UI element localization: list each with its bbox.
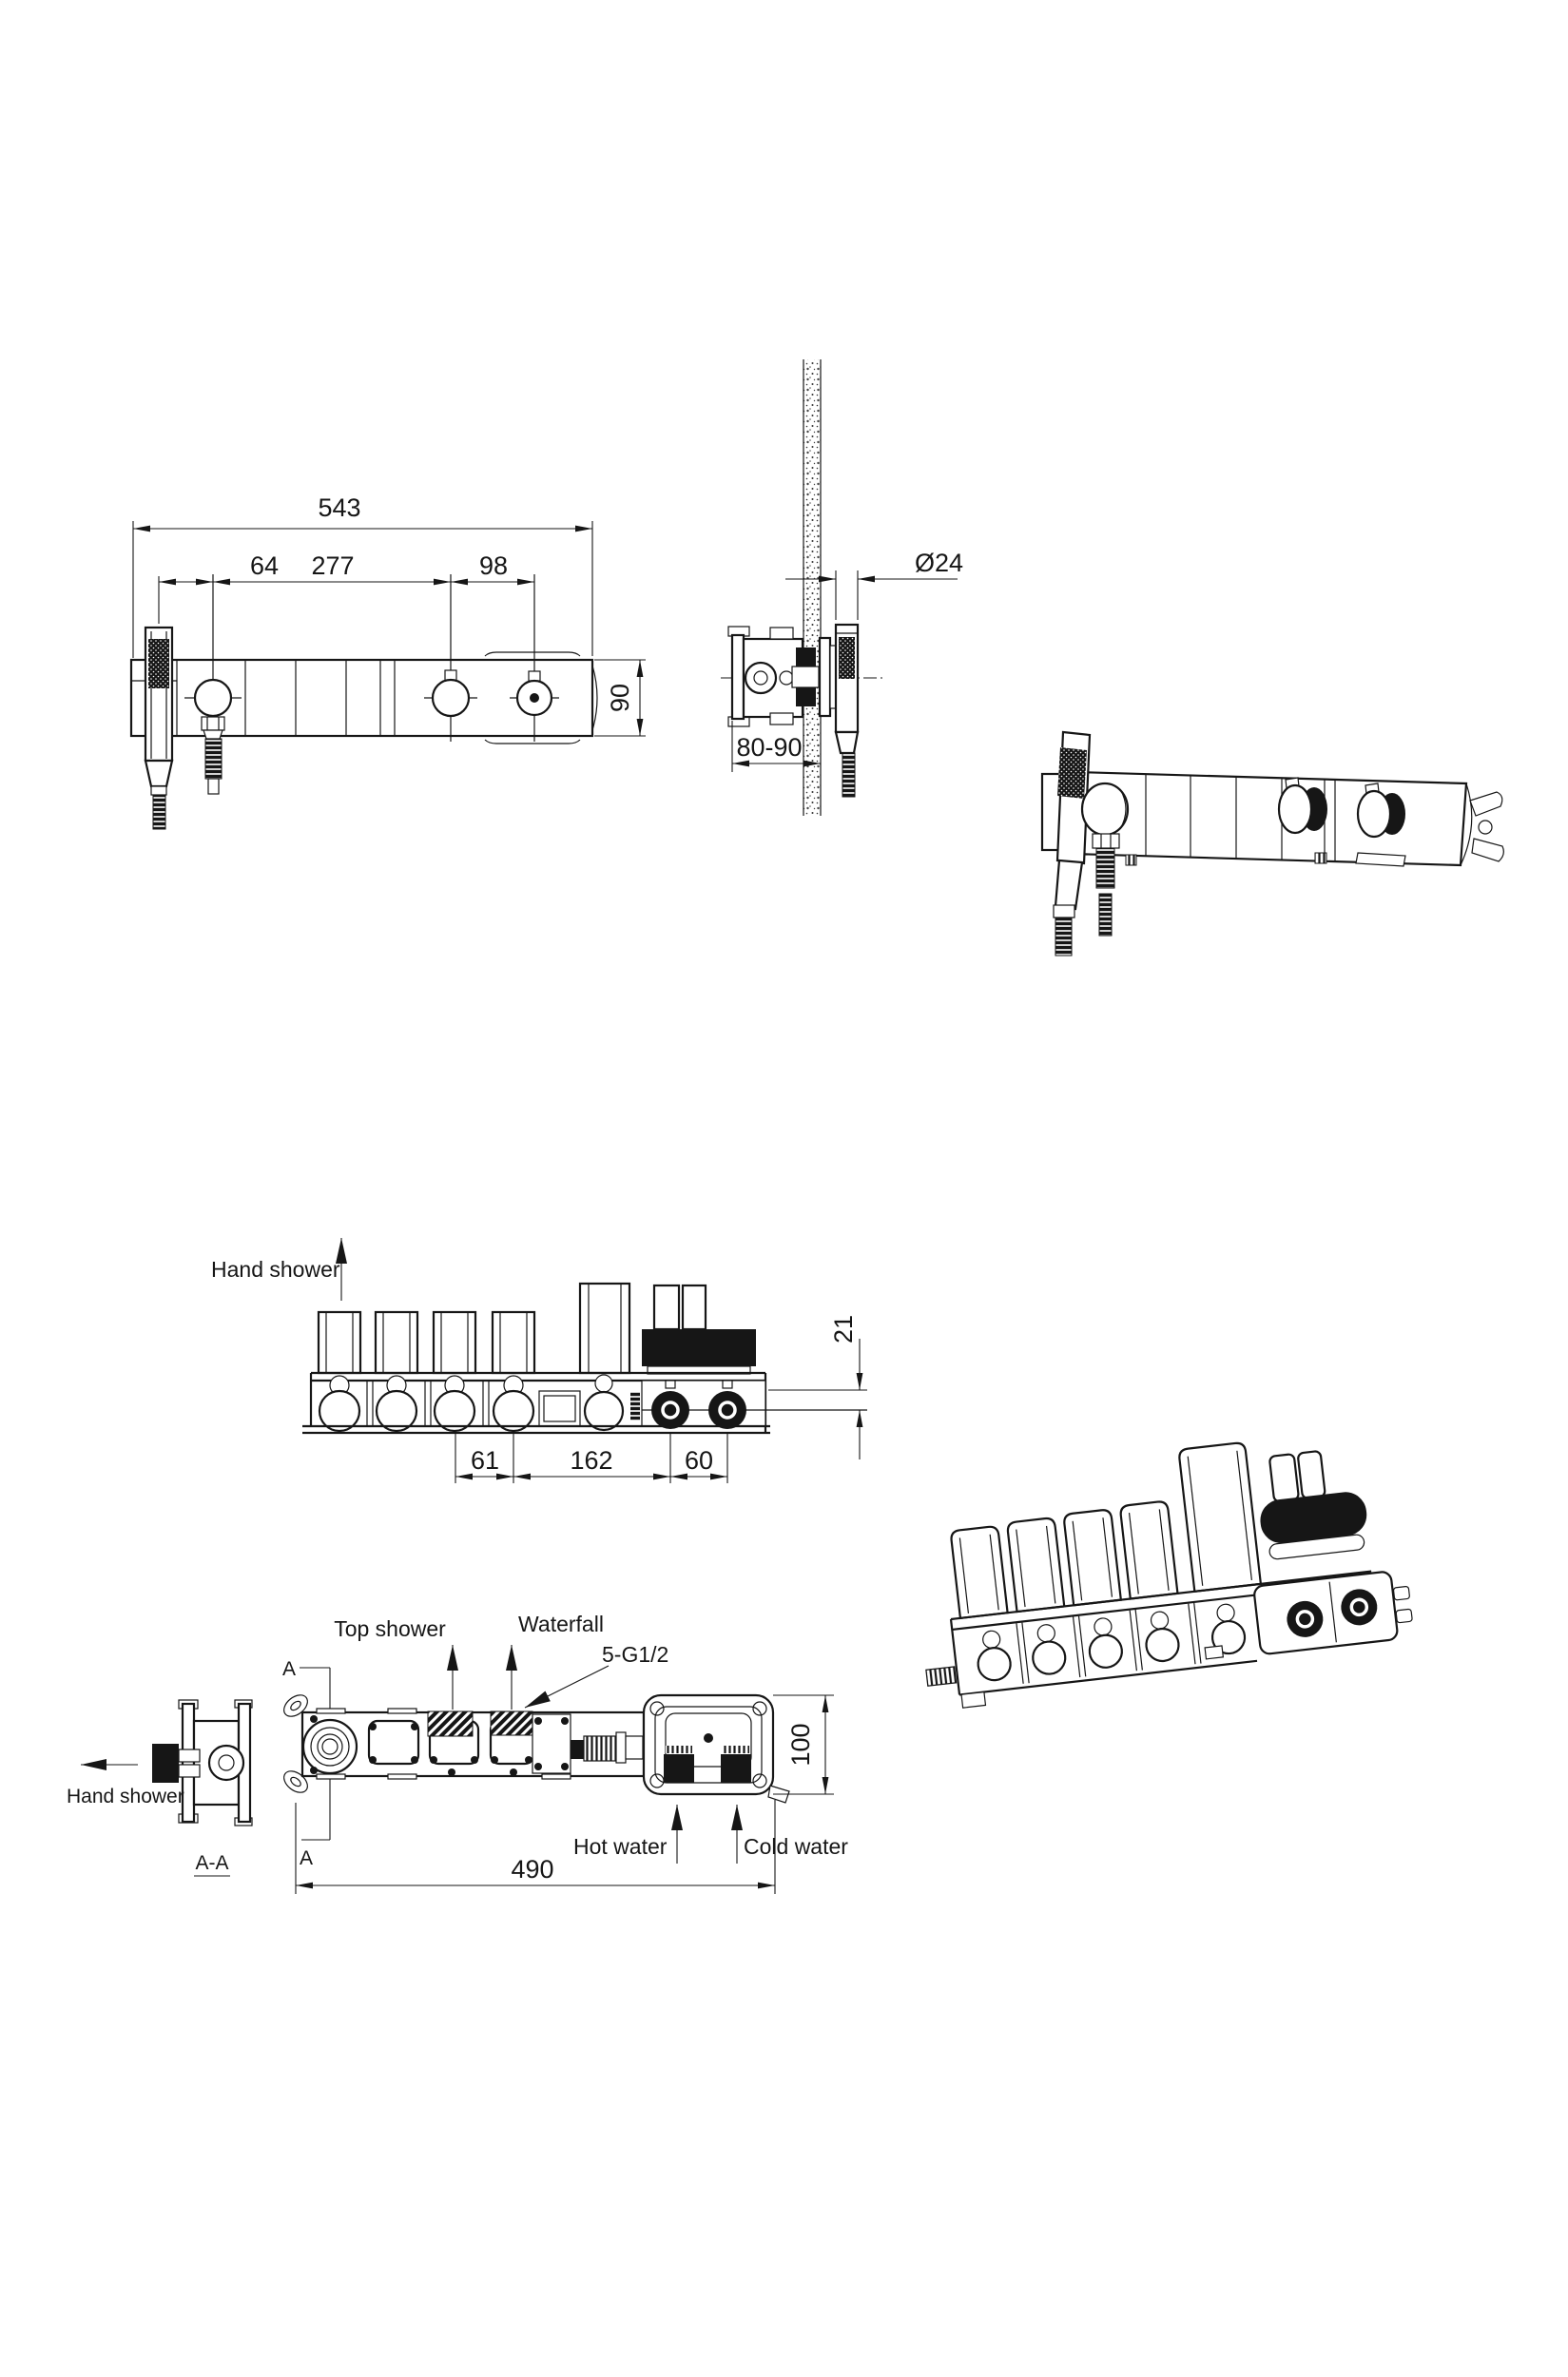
foot-tab-3d bbox=[1356, 853, 1405, 866]
trim-plate bbox=[820, 638, 830, 716]
dim-plate-offset: 21 bbox=[768, 1315, 867, 1459]
cold-water-label: Cold water bbox=[744, 1834, 848, 1859]
rough-in-3d-view bbox=[904, 1425, 1416, 1711]
outlet-port-3d bbox=[1315, 853, 1326, 863]
dim-61: 61 bbox=[471, 1446, 499, 1475]
waterfall-outlet bbox=[491, 1711, 532, 1735]
hand-shower-3d bbox=[1054, 732, 1090, 956]
section-marker-bottom: A bbox=[300, 1847, 313, 1869]
rough-in-body-top bbox=[280, 1691, 789, 1803]
thread-spec-leader bbox=[525, 1666, 609, 1708]
dim-277: 277 bbox=[311, 551, 354, 580]
hand-shower-grip bbox=[148, 639, 169, 688]
dim-80-90: 80-90 bbox=[736, 733, 802, 762]
dim-row-rough-in: 61 162 60 bbox=[455, 1432, 727, 1483]
waterfall-label: Waterfall bbox=[518, 1612, 604, 1636]
hand-shower-label: Hand shower bbox=[211, 1257, 340, 1282]
dim-64: 64 bbox=[250, 551, 279, 580]
rough-in-top-view: Hand shower A-A A A bbox=[67, 1612, 848, 1894]
dim-o24: Ø24 bbox=[915, 549, 963, 577]
section-marker-top: A bbox=[282, 1658, 296, 1680]
backplate-top-edge bbox=[485, 652, 580, 656]
dim-body-length: 490 bbox=[296, 1800, 775, 1894]
backplate-bottom-edge bbox=[485, 740, 580, 744]
dim-90: 90 bbox=[606, 684, 634, 712]
top-shower-outlet bbox=[428, 1711, 473, 1736]
dim-total-width: 543 bbox=[133, 493, 592, 658]
bar-3d bbox=[1073, 772, 1466, 865]
a-a-label: A-A bbox=[195, 1852, 228, 1874]
thread-strip bbox=[630, 1392, 640, 1420]
top-shower-label: Top shower bbox=[334, 1616, 446, 1641]
hand-shower-front bbox=[145, 628, 172, 829]
dim-490: 490 bbox=[511, 1855, 553, 1884]
hot-water-inlet bbox=[664, 1754, 694, 1783]
outlet-thread bbox=[205, 739, 222, 779]
tall-cap-3d bbox=[1178, 1442, 1261, 1592]
front-view: 543 64 277 98 90 bbox=[131, 493, 646, 829]
thread-spec-label: 5-G1/2 bbox=[602, 1642, 668, 1667]
dim-543: 543 bbox=[318, 493, 360, 522]
dim-60: 60 bbox=[685, 1446, 713, 1475]
rough-in-front-view: Hand shower bbox=[211, 1238, 867, 1483]
dim-21: 21 bbox=[829, 1315, 858, 1343]
dim-body-width: 100 bbox=[773, 1695, 834, 1794]
inlet-stub-3d bbox=[926, 1667, 957, 1686]
thermostat-block-top bbox=[644, 1695, 789, 1803]
valve-chambers bbox=[319, 1375, 640, 1431]
section-label: A-A bbox=[194, 1852, 230, 1876]
diverter-knob-3d bbox=[1082, 783, 1128, 936]
drawing-svg: 543 64 277 98 90 bbox=[0, 0, 1568, 2377]
hand-shower-hose bbox=[153, 795, 165, 829]
tall-cap bbox=[580, 1284, 629, 1373]
hand-shower-side bbox=[836, 625, 858, 797]
side-view: Ø24 80-90 bbox=[721, 359, 963, 816]
dim-162: 162 bbox=[570, 1446, 612, 1475]
hot-water-label: Hot water bbox=[573, 1834, 668, 1859]
assembled-panel-3d bbox=[1042, 732, 1503, 956]
dim-bar-height: 90 bbox=[594, 660, 646, 736]
protective-caps bbox=[319, 1284, 756, 1374]
dim-row-knobs: 64 277 98 bbox=[159, 551, 534, 624]
wall-section bbox=[803, 359, 821, 816]
thermostat-cap-band bbox=[642, 1329, 756, 1366]
technical-drawing-sheet: 543 64 277 98 90 bbox=[0, 0, 1568, 2377]
cold-water-inlet bbox=[721, 1754, 751, 1783]
outlet-port-3d bbox=[1126, 855, 1136, 865]
dim-100: 100 bbox=[786, 1723, 815, 1766]
thermostat-block bbox=[642, 1381, 867, 1429]
hand-shower-label-left: Hand shower bbox=[67, 1786, 184, 1807]
dim-98: 98 bbox=[479, 551, 508, 580]
mounting-bracket-3d bbox=[1470, 792, 1503, 861]
